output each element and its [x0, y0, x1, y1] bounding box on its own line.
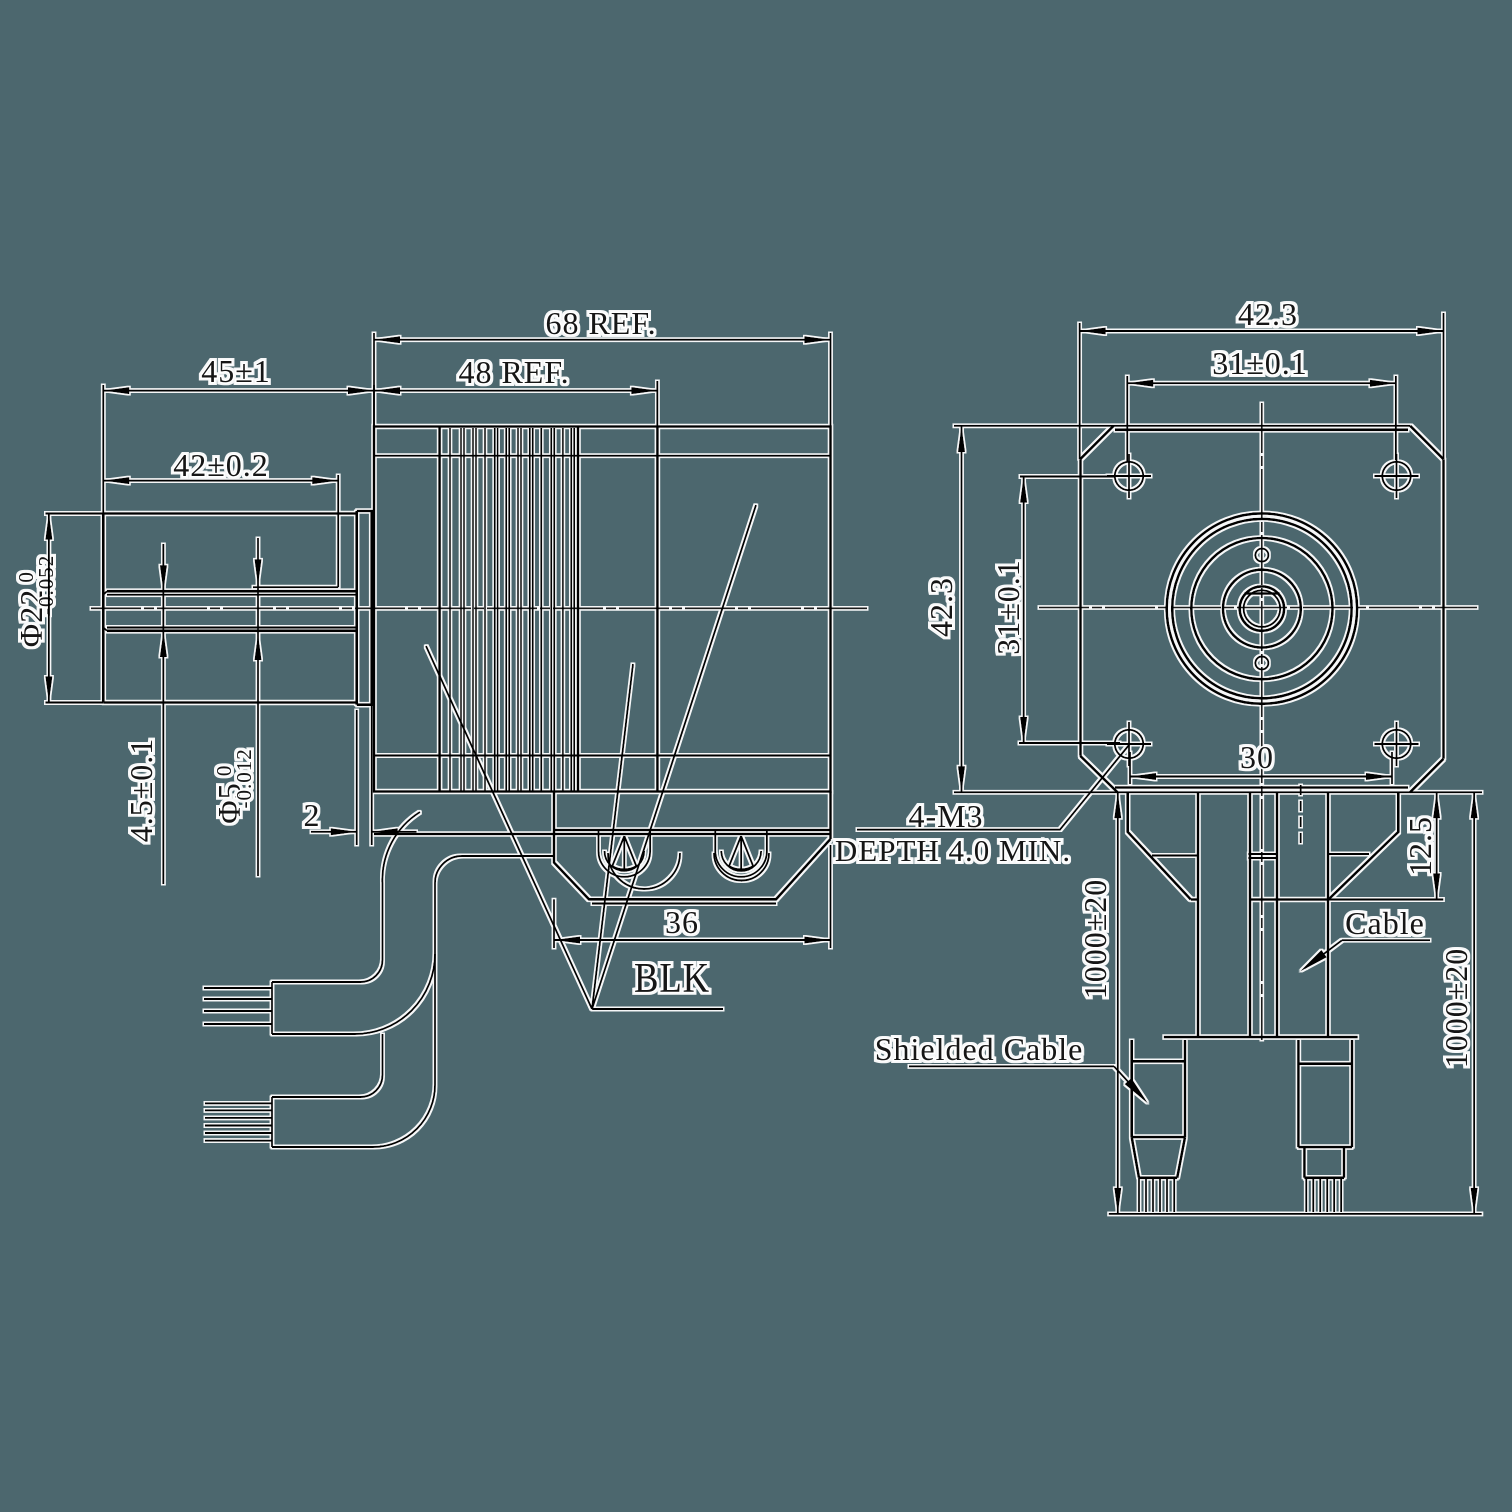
svg-text:Φ22 0-0.052: Φ22 0-0.052 — [13, 555, 58, 647]
svg-text:4-M3: 4-M3 — [908, 798, 983, 834]
svg-text:Cable: Cable — [1345, 905, 1425, 941]
svg-text:BLK: BLK — [634, 956, 710, 1002]
svg-text:2: 2 — [304, 797, 321, 833]
svg-text:Shielded Cable: Shielded Cable — [875, 1031, 1084, 1067]
svg-text:36: 36 — [665, 904, 699, 940]
svg-text:48 REF.: 48 REF. — [458, 354, 569, 390]
svg-text:1000±20: 1000±20 — [1077, 879, 1113, 1000]
svg-text:12.5: 12.5 — [1402, 816, 1438, 876]
svg-text:31±0.1: 31±0.1 — [1212, 345, 1308, 381]
svg-text:31±0.1: 31±0.1 — [990, 559, 1026, 655]
svg-text:1000±20: 1000±20 — [1438, 948, 1474, 1069]
svg-text:Φ5 0-0.012: Φ5 0-0.012 — [211, 748, 256, 823]
svg-text:42±0.2: 42±0.2 — [173, 447, 269, 483]
svg-text:42.3: 42.3 — [1238, 296, 1298, 332]
svg-text:DEPTH 4.0 MIN.: DEPTH 4.0 MIN. — [835, 833, 1071, 868]
svg-text:68 REF.: 68 REF. — [545, 305, 656, 341]
svg-text:42.3: 42.3 — [923, 577, 959, 637]
svg-text:30: 30 — [1240, 739, 1274, 775]
svg-text:4.5±0.1: 4.5±0.1 — [123, 738, 159, 843]
svg-text:45±1: 45±1 — [201, 353, 271, 389]
